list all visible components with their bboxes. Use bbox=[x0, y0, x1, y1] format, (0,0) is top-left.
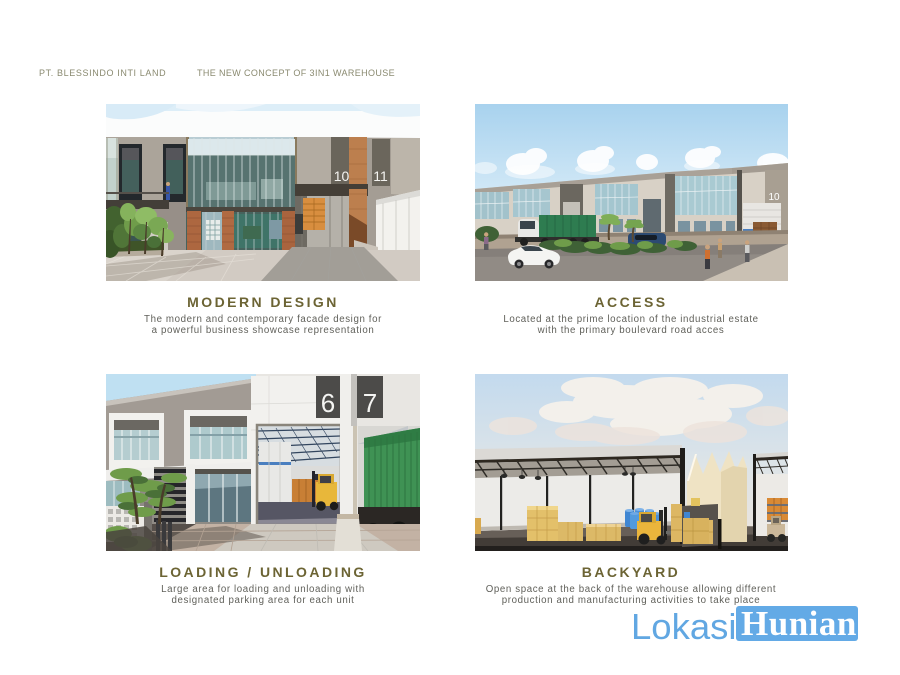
svg-text:7: 7 bbox=[363, 388, 377, 418]
svg-text:11: 11 bbox=[373, 168, 388, 184]
svg-text:10: 10 bbox=[334, 168, 350, 184]
svg-text:10: 10 bbox=[768, 192, 780, 203]
svg-text:6: 6 bbox=[321, 388, 335, 418]
